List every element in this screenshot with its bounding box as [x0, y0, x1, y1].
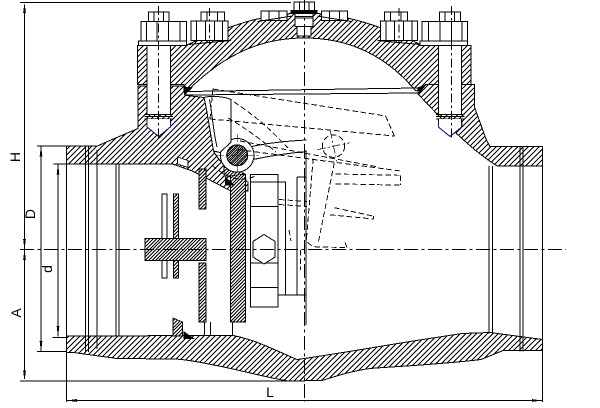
svg-text:H: H [7, 152, 23, 162]
svg-text:L: L [266, 384, 274, 400]
svg-text:d: d [39, 265, 55, 273]
svg-text:A: A [8, 308, 24, 318]
svg-text:D: D [22, 209, 38, 219]
